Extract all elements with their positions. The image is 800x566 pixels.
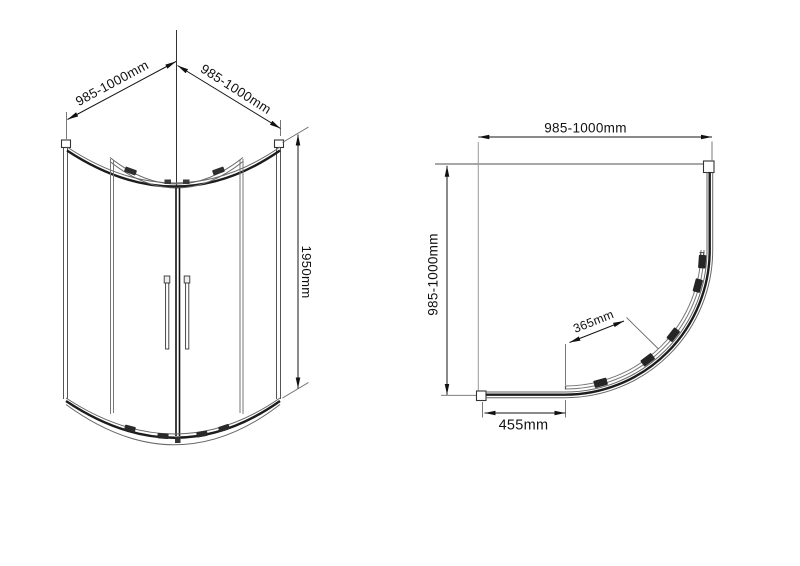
top-center-guide-left <box>165 180 172 185</box>
right-post-cap <box>275 140 284 148</box>
door-meeting-stiles <box>176 188 180 436</box>
left-handle-cap <box>164 276 170 283</box>
top-roller-right <box>212 166 225 175</box>
top-rail <box>67 147 280 187</box>
wall-bracket-bottom-left <box>477 391 487 401</box>
bottom-roller-3 <box>196 430 208 437</box>
right-handle-bar <box>186 283 189 349</box>
dim-label-door-opening: 365mm <box>571 307 616 336</box>
dim-label-plan-depth: 985-1000mm <box>426 233 441 316</box>
technical-drawing-canvas: 985-1000mm 985-1000mm 1950mm <box>0 0 800 566</box>
dimension-door-opening: 365mm <box>566 307 659 385</box>
dim-label-width-left: 985-1000mm <box>73 57 151 109</box>
left-handle-bar <box>166 283 169 349</box>
side-rails <box>486 173 713 398</box>
dimension-width-left: 985-1000mm <box>67 57 177 139</box>
plan-roller-5 <box>698 255 706 269</box>
extension-line-diagonal <box>627 318 659 350</box>
wall-bracket-top-right <box>704 161 715 173</box>
bottom-roller-2 <box>157 433 168 439</box>
frame-right-post <box>275 140 284 399</box>
top-center-guide-right <box>183 180 190 185</box>
top-roller-left <box>124 166 137 175</box>
frame-left-post <box>62 140 71 399</box>
dimension-plan-depth: 985-1000mm <box>426 166 477 395</box>
dimension-side-panel: 455mm <box>483 400 566 434</box>
dimension-plan-width: 985-1000mm <box>478 121 712 162</box>
drawing-page: 985-1000mm 985-1000mm 1950mm <box>0 0 800 566</box>
left-post-cap <box>62 140 71 148</box>
dim-label-width-right: 985-1000mm <box>198 61 274 117</box>
dim-label-side-panel: 455mm <box>499 418 549 434</box>
bottom-center-guide <box>175 437 181 444</box>
door-handles <box>164 276 190 349</box>
plan-view: 985-1000mm 985-1000mm 365mm 455mm <box>426 121 715 434</box>
bottom-rail <box>66 398 280 445</box>
right-handle-cap <box>184 276 190 283</box>
front-elevation-view: 985-1000mm 985-1000mm 1950mm <box>62 30 315 445</box>
dim-label-height: 1950mm <box>299 245 314 298</box>
dimension-height: 1950mm <box>283 127 315 398</box>
dimension-width-right: 985-1000mm <box>178 61 281 136</box>
dim-label-plan-width: 985-1000mm <box>544 121 627 136</box>
